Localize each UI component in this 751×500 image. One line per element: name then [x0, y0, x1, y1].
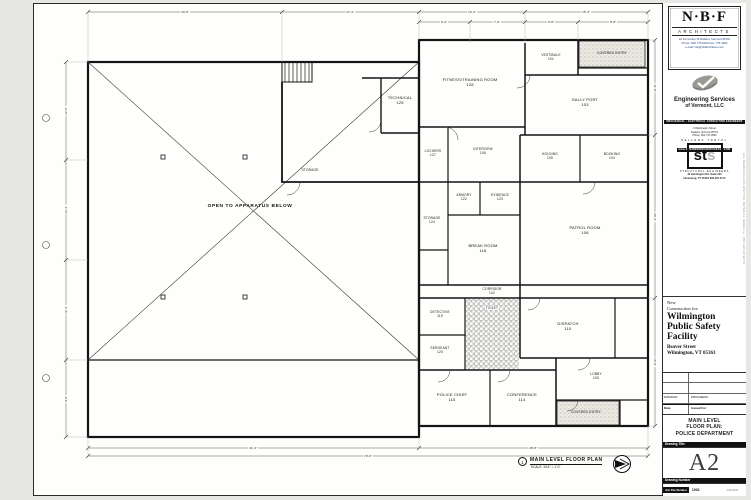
revision-header-row: Date Issued For: [663, 404, 746, 414]
project-intro: New Construction for:: [667, 300, 742, 311]
job-file-number-label: Job File Number: [663, 487, 689, 493]
room-label-lobby: LOBBY 100: [590, 372, 602, 380]
room-label-sally-port: SALLY PORT 103: [572, 97, 598, 107]
drawing-title-block: MAIN LEVEL FLOOR PLAN: POLICE DEPARTMENT…: [663, 414, 746, 447]
room-label-armory: ARMORY 122: [456, 193, 471, 201]
engineering-services-block: Engineering Services of Vermont, LLC MEC…: [663, 73, 746, 137]
dim-left-4: 9'-8": [64, 395, 68, 403]
drawing-number-text: A2: [663, 448, 746, 478]
structural-engineer-block: SELLERS TRETOL sts STRUCTURAL ENGINEERS …: [663, 137, 746, 194]
esv-disciplines: MECHANICAL · ELECTRICAL CONSULTING ENGIN…: [664, 120, 744, 124]
room-label-toilet: TOILET: [485, 306, 499, 310]
room-label-corridor: CORRIDOR 102: [483, 287, 502, 295]
dim-right-3: 16'-0": [653, 357, 657, 367]
dim-right-2: 20'-4": [653, 212, 657, 222]
copyright-side-note: ALL DRAWINGS AND WRITTEN MATERIAL HEREIN…: [742, 153, 745, 265]
room-label-technical: TECHNICAL 125: [388, 95, 412, 105]
floor-plan-drawing: [0, 0, 751, 500]
title-block-spacer: [663, 194, 746, 296]
police-dept-walls: [419, 40, 648, 426]
sts-firm-name: SELLERS TRETOL: [663, 138, 746, 142]
dim-bottom-1: 41'-4": [248, 446, 258, 450]
nbf-email: e-mail: info@nbfarchitects.com: [669, 46, 740, 50]
room-label-covered-entry-top: COVERED ENTRY: [597, 51, 627, 55]
room-label-fitness: FITNESS/TRAINING ROOM 128: [443, 77, 498, 87]
revision-table: 6/26/2020 PROGRESS Date Issued For: [663, 372, 746, 414]
dim-left-1: 12'-0": [64, 106, 68, 116]
nbf-logo: N·B·F ARCHITECTS 24 1/2 Center St Rutlan…: [668, 6, 741, 70]
column-markers: [161, 155, 247, 299]
dimension-lines: [64, 10, 657, 458]
revision-row: 6/26/2020 PROGRESS: [663, 394, 746, 404]
room-label-conference: CONFERENCE 114: [507, 392, 537, 402]
sts-logo-st: st: [694, 147, 707, 164]
grid-bubbles: [43, 115, 50, 382]
dim-top-1: 24'-8": [180, 10, 190, 14]
dim-top-7: 6'-8": [547, 20, 555, 24]
dim-top-2: 17'-4": [345, 10, 355, 14]
room-label-interview: INTERVIEW 106: [473, 147, 492, 155]
sts-logo-s: s: [707, 147, 715, 164]
room-label-storage: STORAGE 124: [424, 216, 441, 224]
drawing-sheet-page: OPEN TO APPARATUS BELOW STORAGE TECHNICA…: [0, 0, 751, 500]
sts-logo: sts: [687, 143, 723, 169]
dim-top-3: 13'-4": [467, 10, 477, 14]
title-block: N·B·F ARCHITECTS 24 1/2 Center St Rutlan…: [662, 3, 746, 496]
room-label-apparatus: OPEN TO APPARATUS BELOW: [208, 204, 293, 210]
revision-date-label: Date: [663, 405, 689, 414]
esv-swoosh-icon: [690, 74, 720, 92]
revision-issued-for: PROGRESS: [689, 394, 746, 403]
dim-left-2: 12'-4": [64, 205, 68, 215]
dim-top-6: 7'-0": [493, 20, 501, 24]
nbf-type: ARCHITECTS: [672, 27, 737, 36]
revision-row-empty: [663, 383, 746, 393]
room-label-patrol: PATROL ROOM 108: [569, 225, 600, 235]
room-label-sergeant: SERGEANT 120: [430, 346, 449, 354]
room-label-dispatch: DISPATCH 110: [557, 321, 578, 331]
dim-bottom-3: 70'-0": [363, 454, 373, 458]
revision-row-empty: [663, 373, 746, 383]
room-label-booking: BOOKING 104: [604, 152, 620, 160]
extension-lines: [66, 12, 655, 456]
room-label-covered-entry-bottom: COVERED ENTRY: [571, 410, 601, 414]
architect-block: N·B·F ARCHITECTS 24 1/2 Center St Rutlan…: [663, 3, 746, 73]
dim-top-8: 8'-8": [609, 20, 617, 24]
room-label-holding: HOLDING 105: [542, 152, 558, 160]
room-label-detective: DETECTIVE 119: [430, 310, 450, 318]
dim-top-5: 6'-4": [440, 20, 448, 24]
revision-date: 6/26/2020: [663, 394, 689, 403]
room-label-break-room: BREAK ROOM 118: [468, 243, 497, 253]
sts-address-2: Hinesburg, VT 05461 802.497.1174: [663, 177, 746, 180]
drawing-title-text: MAIN LEVEL FLOOR PLAN: POLICE DEPARTMENT: [663, 415, 746, 442]
apparatus-bay-walls: [88, 62, 419, 437]
revision-issued-label: Issued For: [689, 405, 746, 414]
room-label-vestibule: VESTIBULE 101: [541, 53, 560, 61]
dim-right-1: 11'-8": [653, 83, 657, 92]
drawing-number-block: A2 Drawing Number: [663, 447, 746, 483]
nbf-name: N·B·F: [669, 10, 740, 25]
project-address: Beaver Street Wilmington, VT 05363: [667, 345, 742, 357]
plan-title-text: MAIN LEVEL FLOOR PLAN: [530, 457, 602, 465]
dim-bottom-2: 28'-8": [528, 446, 538, 450]
job-number-row: Job File Number 1902 6/26/2020: [663, 483, 746, 496]
room-label-evidence: EVIDENCE 123: [491, 193, 509, 201]
plan-number-bubble: 1: [518, 457, 527, 466]
dim-top-4: 15'-4": [581, 10, 591, 14]
dim-left-3: 12'-4": [64, 305, 68, 315]
room-label-mezz-storage: STORAGE: [302, 168, 319, 172]
project-name: Wilmington Public Safety Facility: [667, 313, 742, 343]
plan-scale-text: SCALE: 3/16" = 1'-0": [531, 465, 561, 469]
job-file-number: 1902: [692, 488, 700, 492]
room-label-lockers: LOCKERS 127: [425, 149, 442, 157]
plot-stamp: 6/26/2020: [726, 489, 738, 492]
project-info-block: New Construction for: Wilmington Public …: [663, 296, 746, 372]
plan-title-note: 1 MAIN LEVEL FLOOR PLAN SCALE: 3/16" = 1…: [518, 455, 648, 475]
room-label-police-chief: POLICE CHIEF 115: [437, 392, 467, 402]
stair-hatch: [282, 62, 312, 82]
